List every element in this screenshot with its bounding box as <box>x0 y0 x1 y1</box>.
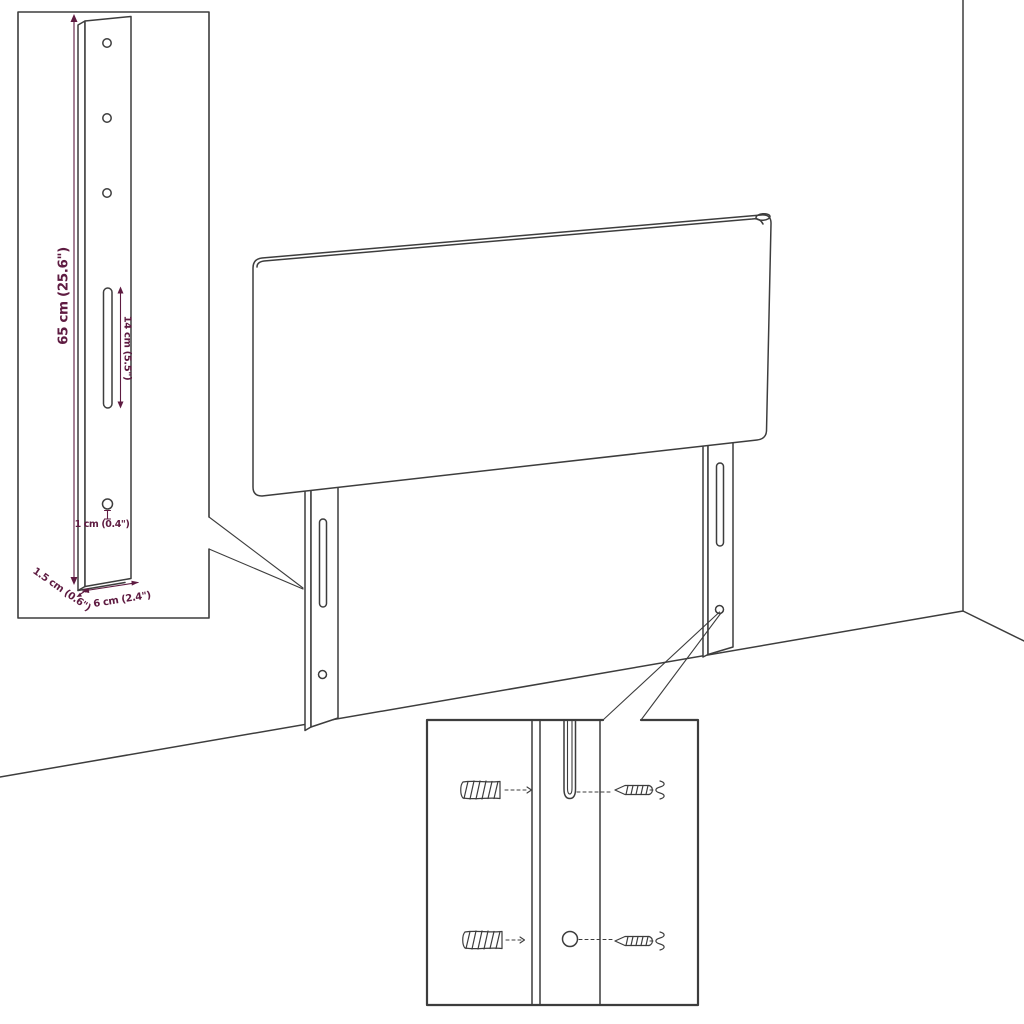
leg-detail-inset: 65 cm (25.6") 14 cm (5.5") 1 cm (0.4") 1… <box>18 12 209 618</box>
line-art: 65 cm (25.6") 14 cm (5.5") 1 cm (0.4") 1… <box>0 0 1024 1005</box>
leg-callout-lines <box>209 517 303 589</box>
panel-front-face <box>253 215 771 496</box>
diagram-page: 65 cm (25.6") 14 cm (5.5") 1 cm (0.4") 1… <box>0 0 1024 1024</box>
left-leg-front-face <box>311 480 338 727</box>
inset-leg-front-face <box>85 17 131 587</box>
callout-line-right <box>641 613 721 720</box>
mounting-detail-inset <box>427 720 698 1005</box>
left-leg-side-face <box>305 480 311 731</box>
callout-line-upper <box>209 517 303 588</box>
diagram-canvas: 65 cm (25.6") 14 cm (5.5") 1 cm (0.4") 1… <box>0 0 1024 1024</box>
callout-line-left <box>603 612 720 720</box>
floor-edge-right <box>963 611 1024 641</box>
headboard-panel <box>253 213 771 496</box>
slot-dimension-label: 14 cm (5.5") <box>122 316 133 381</box>
height-dimension-label: 65 cm (25.6") <box>56 247 72 345</box>
hole-dimension-label: 1 cm (0.4") <box>75 519 130 530</box>
callout-line-lower <box>209 549 303 589</box>
inset-leg-side-face <box>78 21 85 591</box>
inset-leg-drawing <box>78 17 131 591</box>
inset-background <box>427 720 698 1005</box>
left-leg <box>305 480 338 731</box>
